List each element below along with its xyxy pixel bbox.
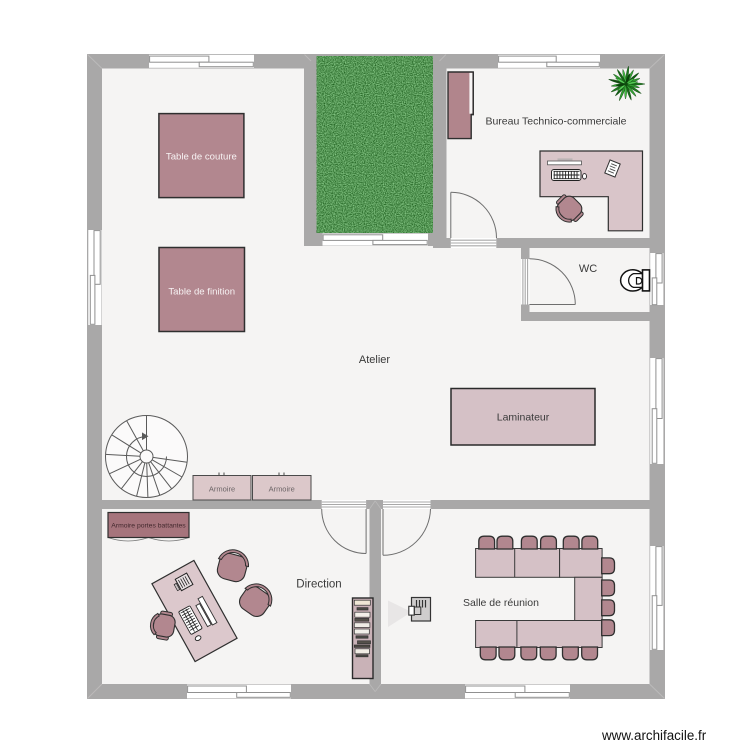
svg-text:Armoire: Armoire — [209, 485, 235, 494]
svg-text:Direction: Direction — [296, 579, 341, 591]
svg-text:Table de couture: Table de couture — [166, 152, 237, 163]
svg-text:Atelier: Atelier — [359, 354, 391, 366]
svg-text:Table de finition: Table de finition — [168, 287, 235, 298]
svg-text:Armoire: Armoire — [269, 485, 295, 494]
svg-text:www.archifacile.fr: www.archifacile.fr — [601, 728, 707, 743]
svg-text:Armoire portes battantes: Armoire portes battantes — [111, 523, 186, 530]
svg-text:WC: WC — [579, 263, 597, 275]
svg-text:Salle de réunion: Salle de réunion — [463, 597, 539, 609]
svg-text:Bureau Technico-commerciale: Bureau Technico-commerciale — [485, 116, 626, 128]
svg-text:Laminateur: Laminateur — [497, 412, 550, 424]
